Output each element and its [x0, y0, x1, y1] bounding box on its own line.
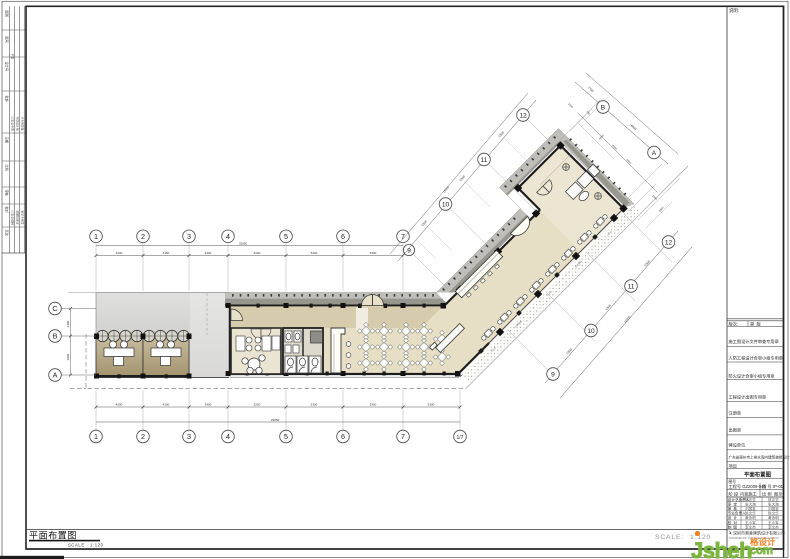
svg-text:平面布置图: 平面布置图 — [29, 530, 77, 541]
svg-text:5300: 5300 — [370, 403, 377, 407]
svg-text:陈文华: 陈文华 — [745, 511, 756, 516]
svg-text:专项设计用: 专项设计用 — [16, 117, 20, 131]
svg-text:校 对: 校 对 — [728, 520, 738, 525]
svg-text:4150: 4150 — [163, 251, 170, 255]
svg-text:说明:: 说明: — [729, 7, 739, 14]
svg-text:11: 11 — [481, 157, 488, 164]
svg-text:IP-01: IP-01 — [773, 484, 784, 489]
svg-text:平面: 平面 — [11, 54, 15, 60]
svg-text:陈文华: 陈文华 — [768, 511, 779, 516]
svg-text:阶 段: 阶 段 — [729, 491, 739, 498]
svg-text:12: 12 — [665, 239, 673, 246]
svg-text:10: 10 — [587, 328, 595, 335]
svg-text:页次: 页次 — [5, 230, 10, 237]
svg-text:1400: 1400 — [567, 102, 574, 109]
svg-text:7: 7 — [401, 232, 405, 241]
svg-text:A: A — [652, 150, 657, 157]
svg-text:7: 7 — [401, 432, 405, 441]
svg-text:王小军: 王小军 — [745, 520, 756, 525]
svg-text:日期: 日期 — [5, 137, 10, 143]
svg-text:B: B — [601, 104, 606, 111]
svg-text:黄永明: 黄永明 — [745, 515, 756, 520]
svg-text:5300: 5300 — [311, 403, 318, 407]
svg-text:设 计: 设 计 — [728, 515, 738, 520]
svg-text:2: 2 — [141, 432, 145, 441]
svg-text:设计号: 设计号 — [5, 62, 10, 72]
svg-text:刘国富: 刘国富 — [768, 506, 779, 511]
svg-text:防火设计合审小组专用章: 防火设计合审小组专用章 — [729, 373, 775, 380]
svg-text:编制校审定: 编制校审定 — [16, 211, 20, 225]
svg-text:4: 4 — [226, 432, 230, 441]
svg-text:5: 5 — [284, 432, 288, 441]
svg-text:6: 6 — [341, 232, 345, 241]
svg-text:比 例: 比 例 — [762, 491, 772, 498]
svg-text:20800: 20800 — [623, 315, 632, 324]
svg-text:内装施工: 内装施工 — [740, 491, 757, 498]
svg-text:4200: 4200 — [116, 251, 123, 255]
svg-text:平面布置图: 平面布置图 — [744, 471, 772, 479]
svg-text:刘国富: 刘国富 — [745, 506, 756, 511]
svg-text:Jsheh: Jsheh — [691, 538, 752, 559]
svg-text:校对: 校对 — [5, 207, 10, 214]
svg-text:2700: 2700 — [587, 86, 595, 94]
svg-text:王小军: 王小军 — [768, 520, 779, 525]
svg-text:出图章: 出图章 — [729, 427, 742, 434]
svg-text:4: 4 — [226, 232, 230, 241]
svg-text:比例: 比例 — [5, 165, 10, 171]
svg-text:6000: 6000 — [611, 144, 618, 151]
svg-text:5300: 5300 — [658, 205, 665, 212]
svg-text:黄永明: 黄永明 — [768, 515, 779, 520]
svg-text:林志坚: 林志坚 — [768, 497, 779, 502]
svg-text:审 核: 审 核 — [728, 506, 738, 511]
svg-text:3: 3 — [187, 432, 191, 441]
svg-text:批准: 批准 — [5, 96, 10, 103]
svg-text:1/7: 1/7 — [457, 435, 464, 441]
svg-text:制 图: 制 图 — [728, 524, 738, 529]
svg-text:12: 12 — [519, 112, 527, 119]
svg-text:4200: 4200 — [116, 403, 123, 407]
svg-text:5: 5 — [284, 232, 288, 241]
svg-text:4600: 4600 — [598, 133, 605, 140]
svg-text:9: 9 — [551, 371, 555, 378]
svg-text:李文杰: 李文杰 — [768, 524, 779, 529]
svg-text:广东省惠州市上排水库内建筑装修设计: 广东省惠州市上排水库内建筑装修设计 — [729, 455, 790, 460]
svg-text:专业负责人: 专业负责人 — [728, 511, 746, 516]
svg-text:1000: 1000 — [651, 194, 658, 201]
svg-text:深圳市奥意建筑设计有限公司: 深圳市奥意建筑设计有限公司 — [733, 530, 785, 536]
svg-text:2400: 2400 — [66, 320, 70, 327]
svg-text:工程号 GZ2009-046: 工程号 GZ2009-046 — [729, 483, 767, 490]
svg-text:审核: 审核 — [5, 190, 10, 197]
svg-text:3400: 3400 — [205, 403, 212, 407]
svg-text:工程设计出图专用章: 工程设计出图专用章 — [729, 394, 767, 401]
svg-text:10: 10 — [442, 201, 450, 208]
svg-text:张大海: 张大海 — [768, 501, 779, 506]
svg-text:李文杰: 李文杰 — [745, 524, 756, 529]
svg-text:6: 6 — [341, 432, 345, 441]
svg-text:C: C — [52, 304, 57, 313]
svg-text:1: 1 — [94, 232, 98, 241]
svg-text:注册章: 注册章 — [729, 410, 742, 417]
svg-text:11: 11 — [628, 283, 635, 290]
svg-text:计专用章备: 计专用章备 — [21, 117, 25, 131]
svg-text:5200: 5200 — [254, 403, 261, 407]
svg-text:2: 2 — [141, 232, 145, 241]
svg-text:格设计: 格设计 — [750, 537, 776, 547]
svg-text:5300: 5300 — [428, 403, 435, 407]
svg-text:9: 9 — [407, 247, 411, 254]
svg-text:5300: 5300 — [311, 251, 318, 255]
svg-text:SCALE 1:120: SCALE 1:120 — [68, 543, 104, 548]
svg-text:人防工程设计合审小组专用章: 人防工程设计合审小组专用章 — [729, 355, 783, 362]
svg-text:图示: 图示 — [774, 492, 782, 498]
svg-text:A: A — [53, 371, 58, 380]
svg-text:750: 750 — [585, 110, 591, 116]
svg-text:5300: 5300 — [459, 174, 467, 182]
svg-text:审定专用章: 审定专用章 — [21, 211, 25, 225]
svg-text:4000: 4000 — [625, 158, 632, 165]
svg-text:32850: 32850 — [239, 241, 248, 245]
svg-text:5200: 5200 — [254, 251, 261, 255]
svg-text:施工图设计文件审查专用章: 施工图设计文件审查专用章 — [729, 338, 779, 345]
svg-text:SCALE:: SCALE: — [655, 534, 684, 541]
svg-text:图 号:: 图 号: — [762, 484, 773, 490]
svg-text:23050: 23050 — [271, 418, 280, 422]
svg-text:5300: 5300 — [566, 347, 574, 355]
svg-text:建设单位: 建设单位 — [729, 442, 746, 449]
svg-text:图别: 图别 — [5, 11, 10, 17]
svg-text:3: 3 — [187, 232, 191, 241]
svg-text:3900: 3900 — [66, 353, 70, 360]
svg-text:审 定: 审 定 — [728, 501, 738, 506]
svg-text:16600: 16600 — [442, 185, 451, 194]
svg-text:林志坚: 林志坚 — [745, 497, 756, 502]
svg-text:张大海: 张大海 — [745, 501, 756, 506]
svg-text:B: B — [53, 332, 58, 341]
svg-text:1: 1 — [94, 432, 98, 441]
svg-text:5300: 5300 — [370, 251, 377, 255]
svg-text:3400: 3400 — [205, 251, 212, 255]
svg-text:02安全编制: 02安全编制 — [11, 211, 15, 226]
svg-text:4150: 4150 — [163, 403, 170, 407]
svg-text:02安全专项: 02安全专项 — [11, 117, 15, 132]
svg-text:4600: 4600 — [630, 124, 638, 132]
svg-text:图号: 图号 — [5, 37, 10, 43]
